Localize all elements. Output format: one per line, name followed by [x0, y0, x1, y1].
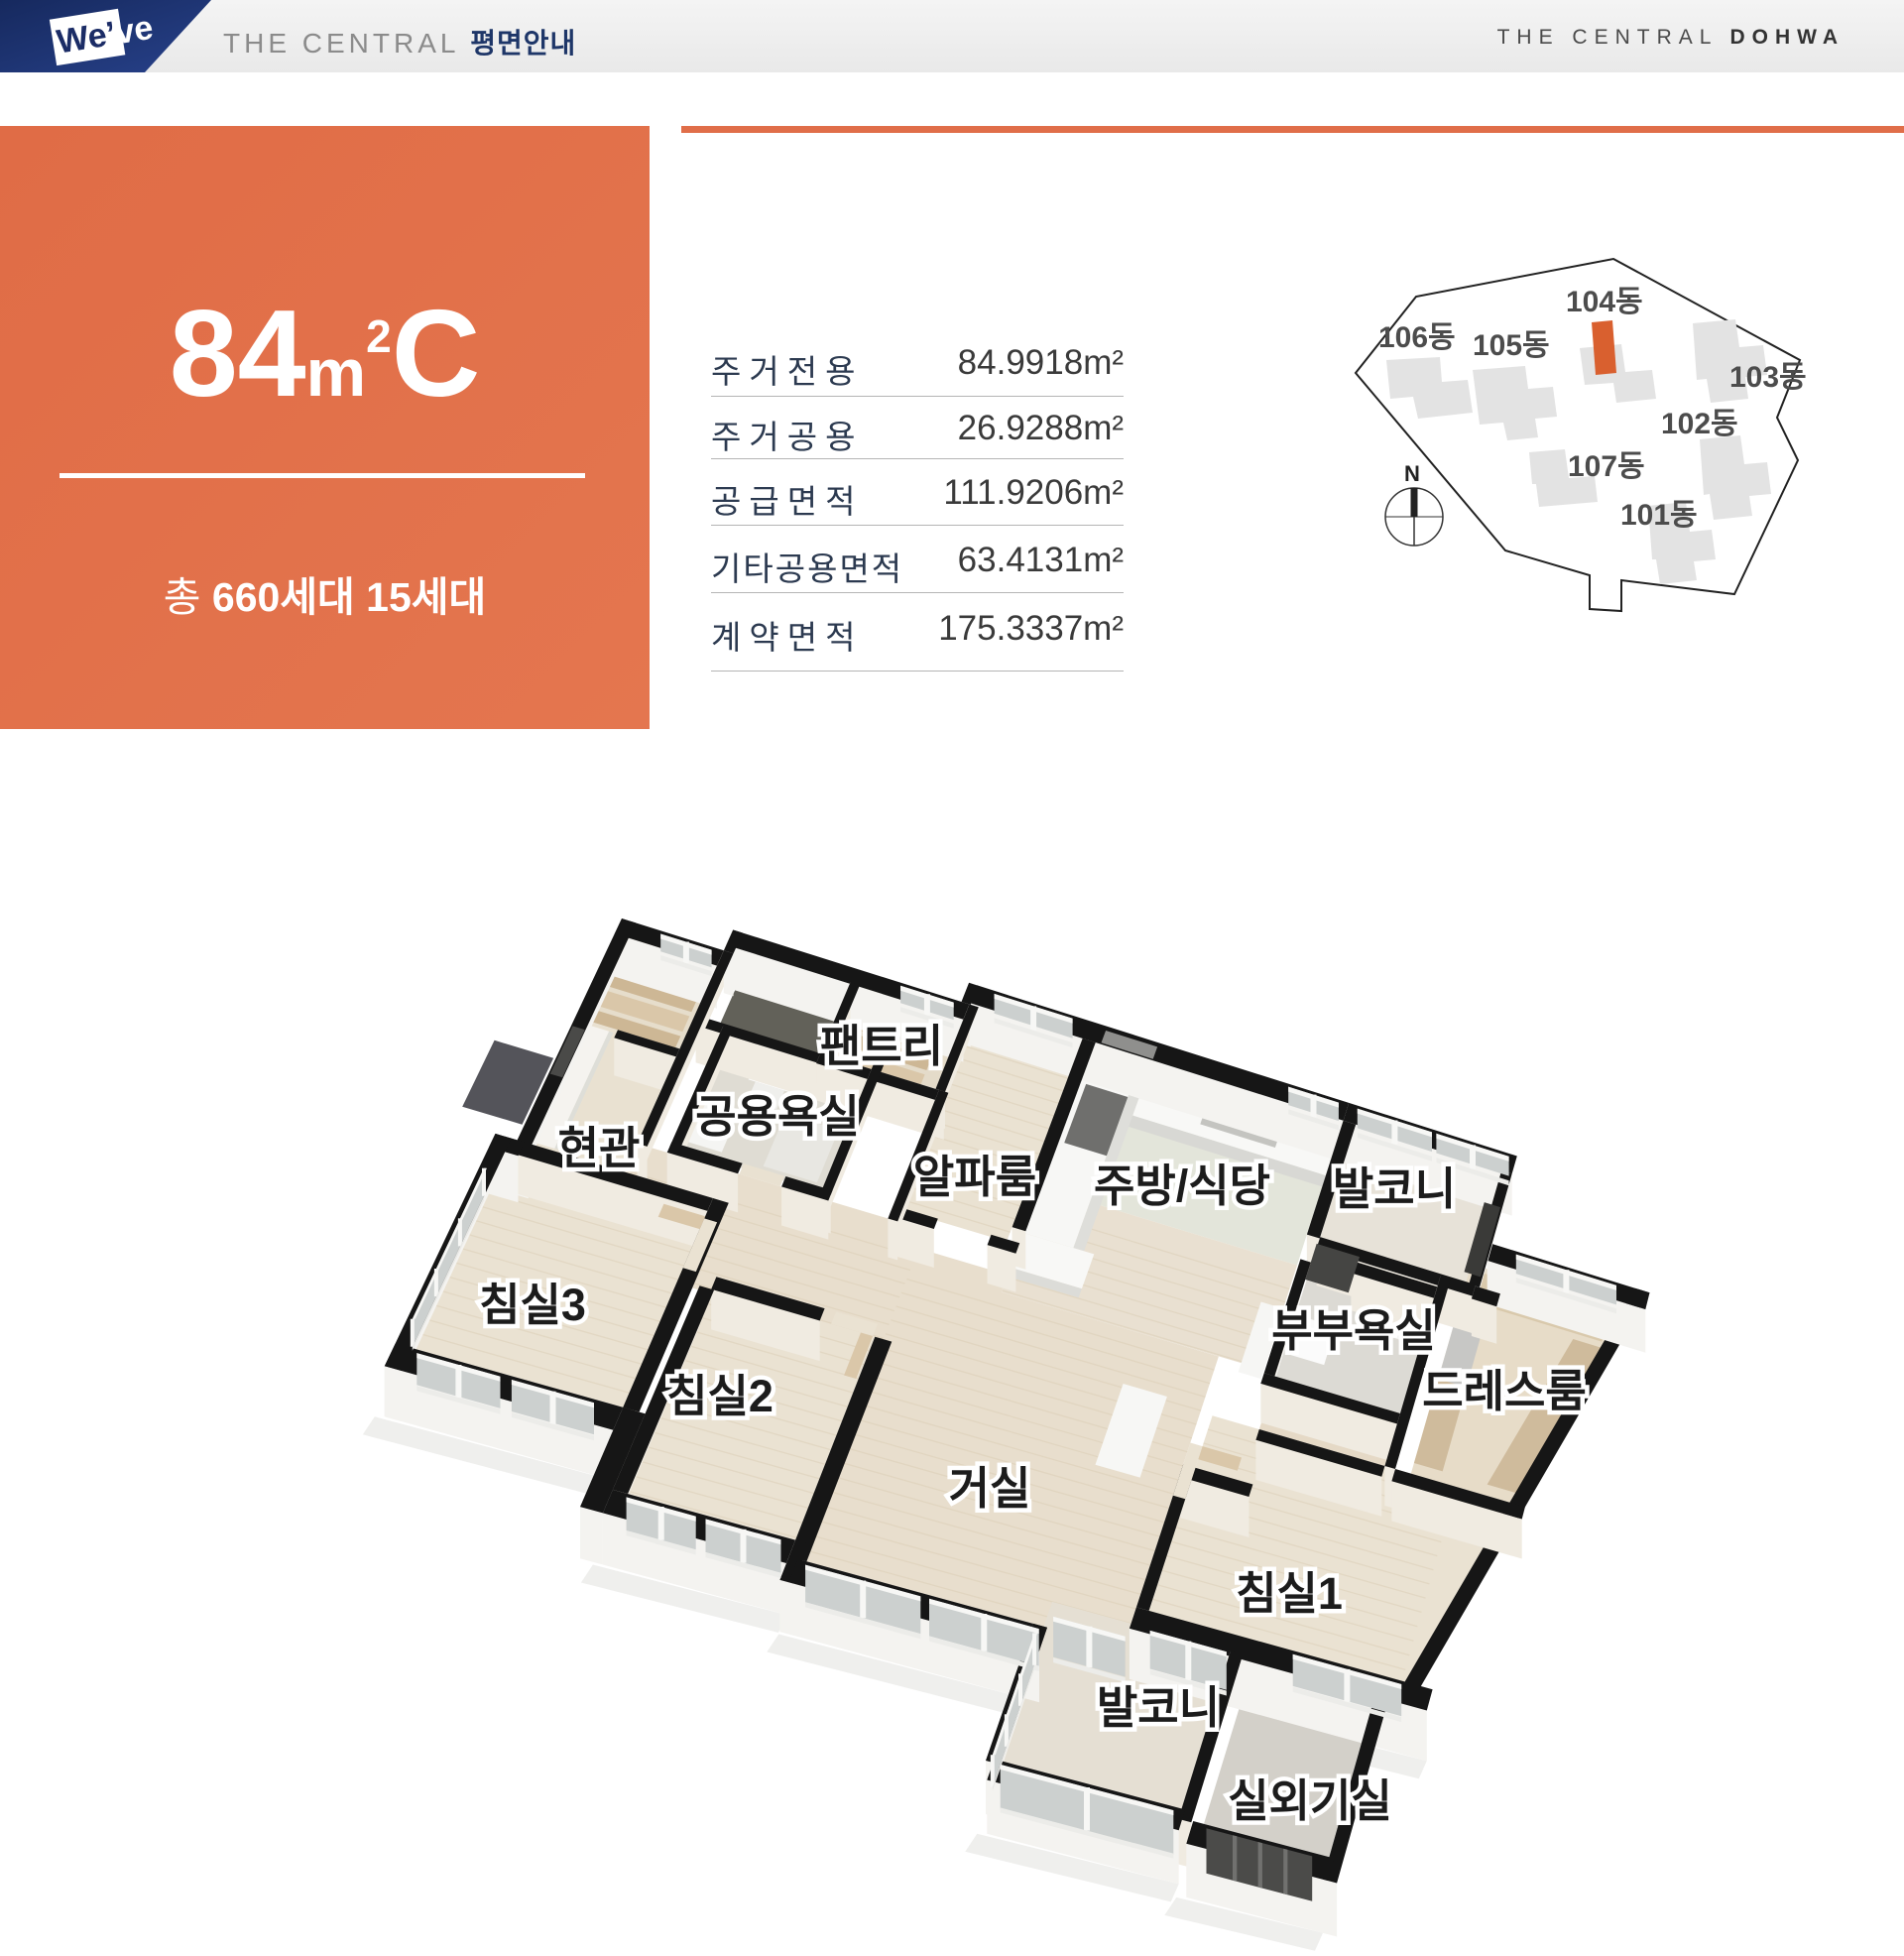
svg-text:부부욕실: 부부욕실 [1271, 1305, 1436, 1356]
svg-text:실외기실: 실외기실 [1228, 1775, 1392, 1826]
svg-text:침실2: 침실2 [666, 1371, 773, 1421]
svg-text:거실: 거실 [949, 1463, 1031, 1514]
svg-text:침실3: 침실3 [479, 1280, 586, 1330]
svg-text:현관: 현관 [558, 1123, 641, 1173]
svg-text:공용욕실: 공용욕실 [695, 1091, 860, 1142]
svg-text:알파룸: 알파룸 [913, 1152, 1036, 1202]
svg-text:발코니: 발코니 [1097, 1682, 1220, 1733]
svg-text:드레스룸: 드레스룸 [1422, 1366, 1587, 1416]
svg-text:발코니: 발코니 [1333, 1163, 1456, 1214]
svg-text:팬트리: 팬트리 [820, 1021, 943, 1071]
svg-text:침실1: 침실1 [1236, 1568, 1343, 1619]
svg-text:주방/식당: 주방/식당 [1094, 1161, 1270, 1211]
